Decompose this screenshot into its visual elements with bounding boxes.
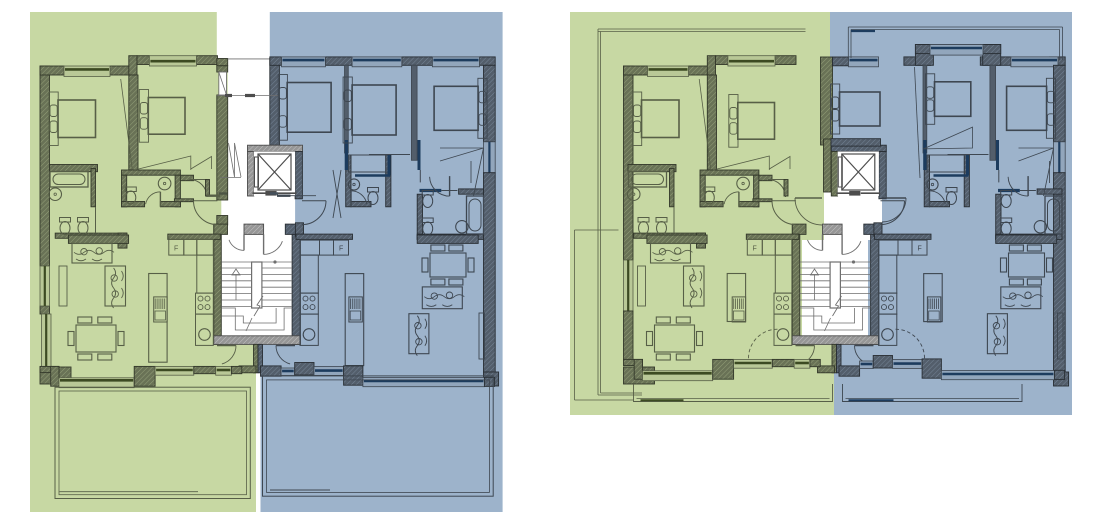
svg-text:F: F bbox=[339, 246, 343, 253]
svg-text:F: F bbox=[174, 246, 178, 253]
svg-text:F: F bbox=[753, 246, 757, 253]
svg-text:F: F bbox=[918, 246, 922, 253]
